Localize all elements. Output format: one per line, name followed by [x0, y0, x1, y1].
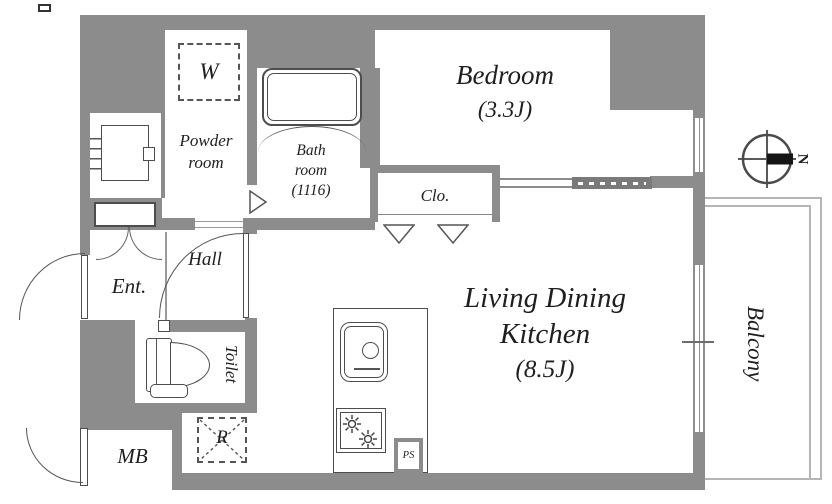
powder-room-label-line2: room	[163, 153, 249, 173]
ps-label: PS	[403, 450, 415, 461]
wall-top-left-mass	[80, 15, 165, 115]
shoe-cabinet-door-arc-right	[129, 227, 162, 260]
ldk-label-line2: Kitchen	[415, 318, 675, 351]
bedroom-window-mullion	[699, 118, 700, 172]
bathroom-label-line1: Bath	[257, 142, 365, 160]
wall-hall-top-left	[162, 218, 195, 230]
mb-door-arc	[26, 428, 83, 483]
bathroom-label-line2: room	[257, 162, 365, 180]
bedroom-size-label: (3.3J)	[390, 97, 620, 123]
wall-top	[80, 15, 705, 30]
kitchen-sink-line	[354, 368, 380, 370]
mb-label: MB	[93, 444, 172, 469]
compass-icon: N	[735, 128, 813, 192]
washbasin-faucet	[143, 147, 155, 161]
refrigerator-label: R	[199, 427, 245, 449]
floor-plan: W R PS	[0, 0, 832, 504]
balcony-label: Balcony	[740, 288, 768, 400]
towel-rail-lines	[90, 138, 101, 174]
bedroom-window	[693, 118, 705, 172]
washer-label: W	[199, 59, 218, 85]
hall-door-arc	[159, 233, 243, 318]
refrigerator-box: R	[197, 417, 247, 463]
wall-hall-top-right	[243, 218, 375, 230]
wall-hall-ldk-lower	[245, 318, 257, 413]
hall-label: Hall	[168, 249, 242, 271]
ldk-window	[693, 265, 705, 432]
wall-bedroom-notch	[610, 30, 693, 110]
balcony-outline-inner-right	[809, 205, 811, 480]
closet-door-triangle-left-icon	[383, 224, 415, 245]
bathtub-inner	[267, 73, 357, 121]
shoe-cabinet	[94, 202, 156, 227]
wall-bottom	[172, 473, 705, 490]
ldk-size-label: (8.5J)	[415, 356, 675, 384]
closet-door-triangle-right-icon	[437, 224, 469, 245]
compass-north-label: N	[795, 154, 811, 165]
washbasin-counter	[101, 125, 149, 181]
toilet-label: Toilet	[215, 328, 241, 400]
sliding-door-track	[500, 178, 572, 188]
toilet-bowl	[170, 342, 210, 388]
kitchen-faucet	[362, 342, 379, 359]
wall-bath-top-mass	[247, 30, 375, 68]
toilet-base	[150, 384, 188, 398]
corner-mark	[38, 4, 51, 12]
wall-right-upper	[693, 30, 705, 118]
wall-sliding-end	[650, 176, 693, 188]
bedroom-label: Bedroom	[390, 60, 620, 91]
hall-door-leaf	[243, 233, 249, 318]
closet-track-line	[378, 214, 492, 215]
sliding-door-dashes	[578, 182, 646, 185]
powder-room-label-line1: Powder	[163, 131, 249, 151]
balcony-outline-inner-top	[705, 205, 811, 207]
wall-toilet-bottom	[130, 403, 257, 413]
entrance-door-arc	[19, 253, 85, 320]
ldk-window-mullion	[699, 265, 700, 432]
entrance-label: Ent.	[90, 274, 168, 299]
ps-interior: PS	[398, 442, 419, 469]
wall-right-lower	[693, 432, 705, 490]
stove-burner-icon-2	[358, 429, 378, 449]
washer-box: W	[178, 43, 240, 101]
closet-label: Clo.	[378, 186, 492, 206]
wall-right-middle	[693, 172, 705, 265]
sliding-door-panel	[572, 177, 652, 189]
ldk-label-line1: Living Dining	[415, 282, 675, 315]
toilet-door-leaf	[158, 320, 170, 332]
bathroom-label-line3: (1116)	[257, 182, 365, 200]
powder-door-track	[195, 221, 243, 228]
shoe-cabinet-door-arc-left	[96, 227, 129, 260]
